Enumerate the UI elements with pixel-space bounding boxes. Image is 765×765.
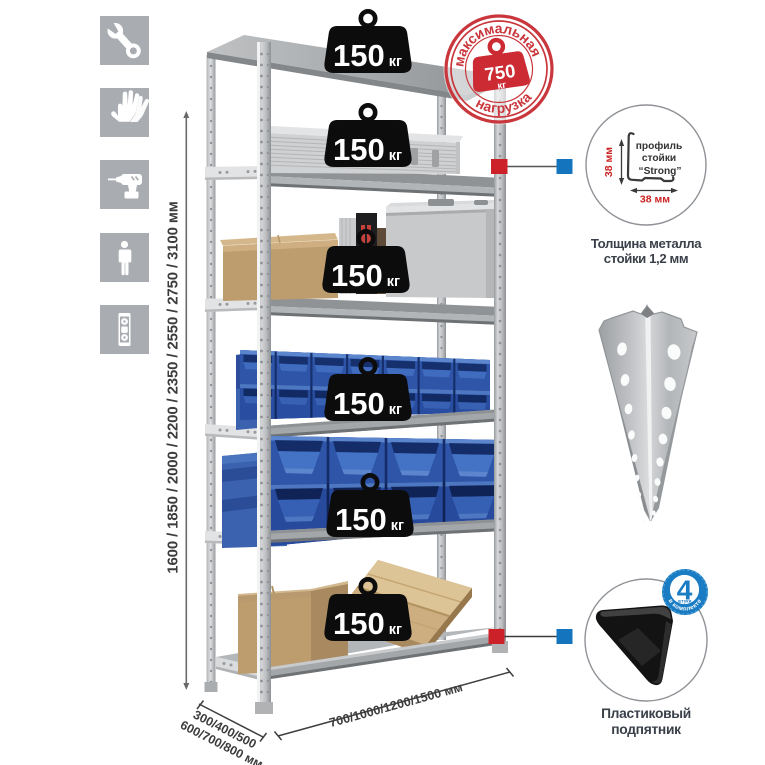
svg-text:кг: кг: [497, 80, 507, 92]
svg-text:Пластиковый: Пластиковый: [601, 706, 691, 721]
svg-text:Толщина металла: Толщина металла: [591, 236, 702, 251]
svg-text:подпятник: подпятник: [611, 722, 681, 737]
svg-text:профиль: профиль: [636, 140, 683, 152]
svg-text:стойки 1,2 мм: стойки 1,2 мм: [604, 251, 688, 266]
svg-text:38 мм: 38 мм: [640, 194, 670, 206]
svg-text:“Strong”: “Strong”: [638, 166, 681, 177]
svg-text:38 мм: 38 мм: [603, 147, 615, 177]
svg-text:стойки: стойки: [642, 153, 676, 164]
svg-text:штуки: штуки: [678, 599, 692, 604]
svg-text:1600 / 1850 / 2000 / 2200 / 23: 1600 / 1850 / 2000 / 2200 / 2350 / 2550 …: [165, 201, 182, 573]
